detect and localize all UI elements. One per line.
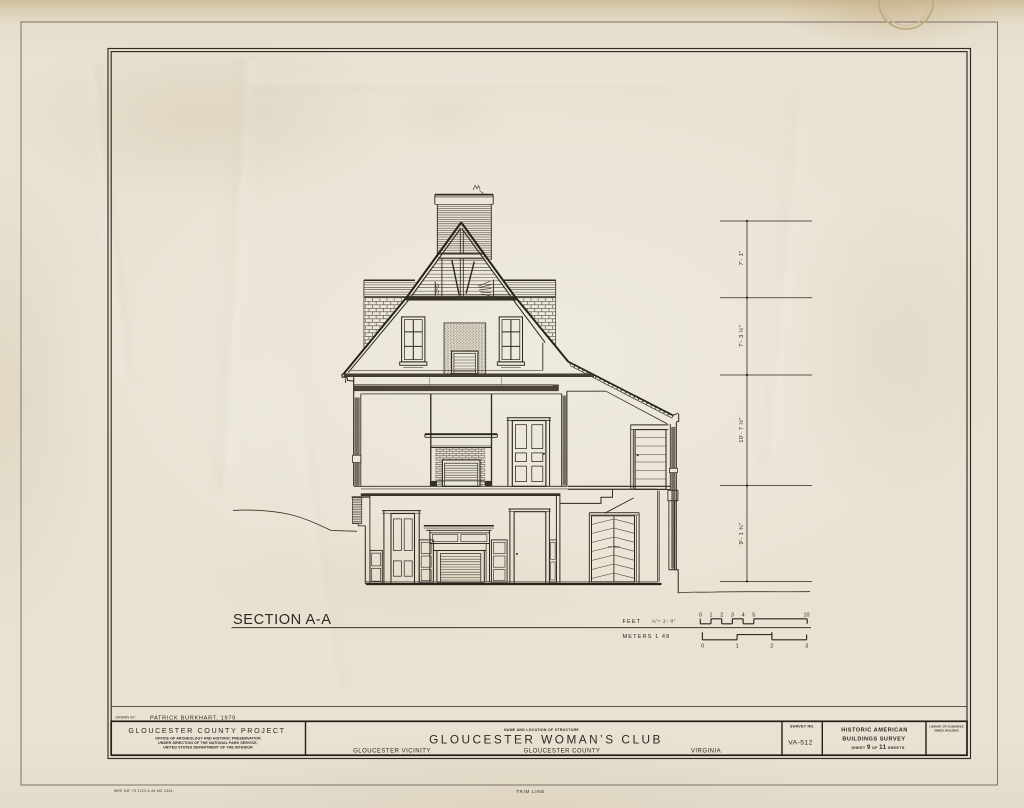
svg-text:GLOUCESTER WOMAN’S CLUB: GLOUCESTER WOMAN’S CLUB xyxy=(429,733,663,747)
svg-text:SHEET 9 OF 11 SHEETS: SHEET 9 OF 11 SHEETS xyxy=(851,744,905,751)
svg-text:7′- 3 ½″: 7′- 3 ½″ xyxy=(738,325,745,347)
svg-text:1: 1 xyxy=(710,612,713,618)
svg-text:ANNEX BUILDING: ANNEX BUILDING xyxy=(934,729,959,733)
svg-text:VA-512: VA-512 xyxy=(788,740,813,747)
svg-text:7′- 1″: 7′- 1″ xyxy=(739,251,745,266)
svg-text:FEET: FEET xyxy=(623,619,642,625)
svg-text:¼″= 1′- 0″: ¼″= 1′- 0″ xyxy=(652,619,676,625)
svg-text:OFFICE OF ARCHEOLOGY AND HISTO: OFFICE OF ARCHEOLOGY AND HISTORIC PRESER… xyxy=(155,736,261,740)
svg-text:3: 3 xyxy=(731,612,734,618)
svg-text:GLOUCESTER COUNTY: GLOUCESTER COUNTY xyxy=(524,748,601,754)
svg-text:2: 2 xyxy=(770,644,773,650)
svg-text:9′- 1 ¾″: 9′- 1 ¾″ xyxy=(739,523,745,545)
svg-text:0: 0 xyxy=(699,612,702,618)
svg-text:HISTORIC AMERICAN: HISTORIC AMERICAN xyxy=(841,727,908,733)
svg-text:1: 1 xyxy=(736,644,739,650)
svg-text:GLOUCESTER VICINITY: GLOUCESTER VICINITY xyxy=(353,748,431,754)
svg-text:UNDER DIRECTION OF THE NATIONA: UNDER DIRECTION OF THE NATIONAL PARK SER… xyxy=(158,741,258,745)
svg-text:UNITED STATES DEPARTMENT OF TH: UNITED STATES DEPARTMENT OF THE INTERIOR xyxy=(163,745,253,749)
svg-text:GLOUCESTER COUNTY PROJECT: GLOUCESTER COUNTY PROJECT xyxy=(128,726,285,735)
svg-text:2: 2 xyxy=(720,612,723,618)
svg-text:DRAWN BY:: DRAWN BY: xyxy=(116,716,137,720)
svg-text:LIBRARY OF CONGRESS: LIBRARY OF CONGRESS xyxy=(929,725,963,729)
svg-text:10′- 7 ½″: 10′- 7 ½″ xyxy=(738,417,745,443)
svg-text:VIRGINIA: VIRGINIA xyxy=(691,748,721,754)
svg-text:WRE 54F 75 1223 A-44 MC 2349-: WRE 54F 75 1223 A-44 MC 2349- xyxy=(114,789,174,793)
svg-text:BUILDINGS SURVEY: BUILDINGS SURVEY xyxy=(842,736,905,742)
svg-text:4: 4 xyxy=(742,612,745,618)
svg-text:SURVEY NO.: SURVEY NO. xyxy=(790,725,815,729)
svg-text:3: 3 xyxy=(805,644,808,650)
svg-text:0: 0 xyxy=(701,644,704,650)
svg-text:10: 10 xyxy=(804,612,810,618)
svg-text:METERS 1 48: METERS 1 48 xyxy=(623,634,671,640)
svg-text:SECTION A-A: SECTION A-A xyxy=(233,612,332,628)
svg-text:5: 5 xyxy=(752,612,755,618)
svg-text:TRIM LINE: TRIM LINE xyxy=(516,789,545,794)
